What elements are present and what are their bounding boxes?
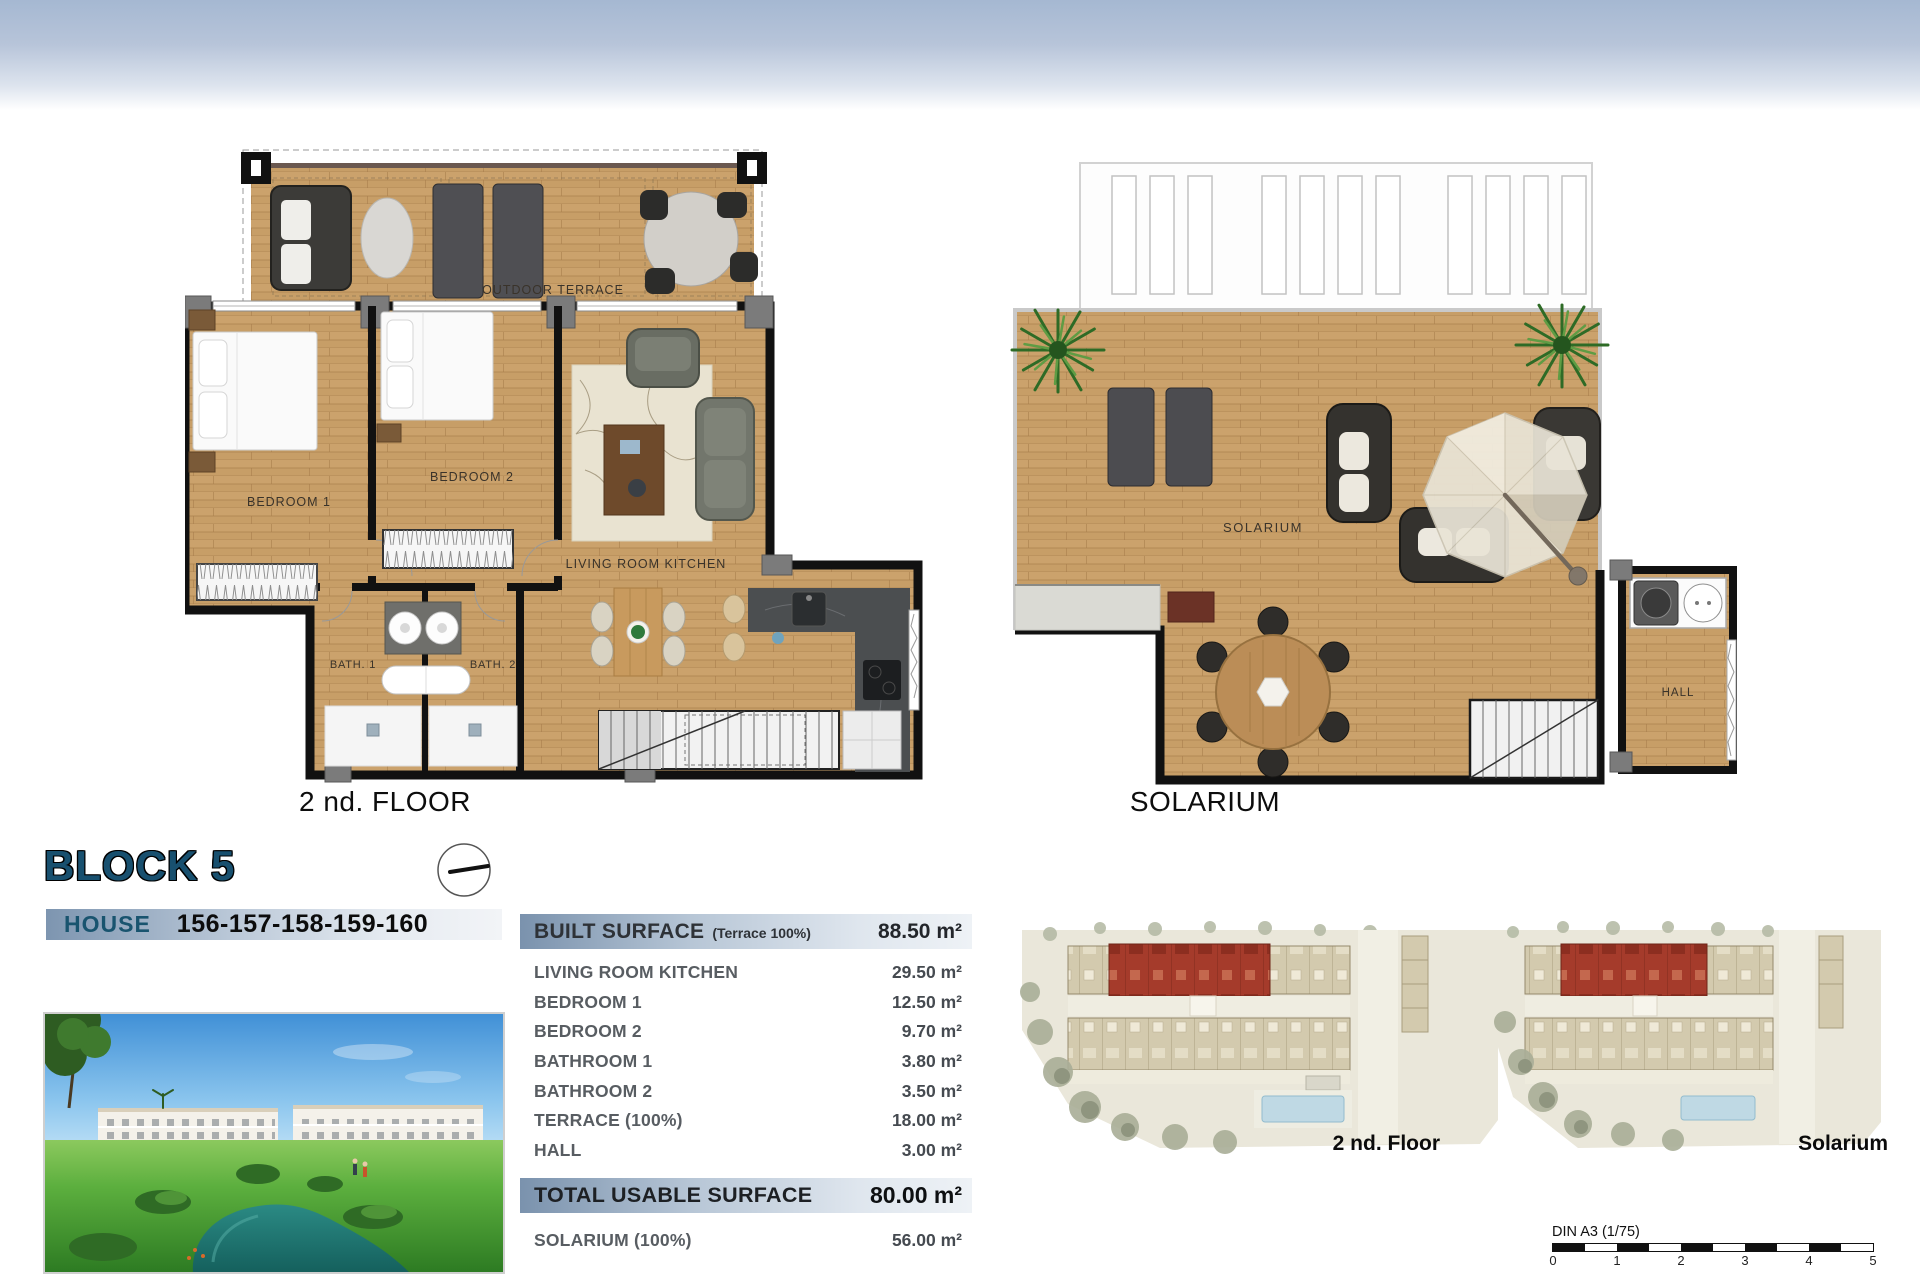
pergola: [1080, 163, 1592, 309]
built-surface-header: BUILT SURFACE (Terrace 100%) 88.50 m²: [520, 914, 972, 949]
surface-rows: LIVING ROOM KITCHEN 29.50 m² BEDROOM 1 1…: [520, 958, 972, 1165]
label-hall: HALL: [1662, 687, 1695, 699]
scale-bar-label: DIN A3 (1/75): [1552, 1224, 1874, 1240]
table-row: BATHROOM 2 3.50 m²: [520, 1076, 972, 1106]
highlighted-units: [1109, 944, 1270, 996]
pool: [1681, 1096, 1755, 1120]
label-living-room-kitchen: LIVING ROOM KITCHEN: [566, 557, 727, 571]
table-row: BEDROOM 1 12.50 m²: [520, 988, 972, 1018]
site-plan-second-floor-label: 2 nd. Floor: [1240, 1132, 1440, 1156]
label-bedroom1: BEDROOM 1: [247, 495, 331, 509]
table-row: TERRACE (100%) 18.00 m²: [520, 1106, 972, 1136]
built-surface-value: 88.50 m²: [878, 920, 962, 944]
outdoor-terrace-area: OUTDOOR TERRACE: [241, 150, 767, 308]
label-bath2: BATH. 2: [470, 659, 516, 671]
sky-gradient-band: [0, 0, 1920, 110]
terrace-ottoman: [361, 198, 413, 278]
scale-bar: DIN A3 (1/75) 0 1 2 3 4 5: [1552, 1224, 1874, 1268]
hall-room: [1610, 560, 1736, 772]
sliding-windows: [213, 301, 737, 311]
floorplan-second-floor: OUTDOOR TERRACE: [185, 140, 925, 790]
surface-table: BUILT SURFACE (Terrace 100%) 88.50 m² LI…: [520, 914, 972, 1256]
built-surface-label: BUILT SURFACE: [534, 920, 704, 944]
house-numbers: 156-157-158-159-160: [177, 910, 428, 939]
table-row: LIVING ROOM KITCHEN 29.50 m²: [520, 958, 972, 988]
scale-bar-segments: [1552, 1243, 1874, 1252]
label-outdoor-terrace: OUTDOOR TERRACE: [482, 283, 624, 297]
property-photo: [43, 1012, 505, 1274]
north-indicator-icon: [436, 842, 492, 898]
floorplan-solarium: HALL SOLARIUM: [1000, 140, 1745, 790]
terrace-sofa: [271, 186, 351, 290]
second-floor-title: 2 nd. FLOOR: [245, 786, 525, 818]
scale-bar-ticks: 0 1 2 3 4 5: [1547, 1253, 1879, 1268]
concrete-walkway: [1015, 585, 1160, 630]
label-bath1: BATH. 1: [330, 659, 376, 671]
site-plan-solarium: [1483, 912, 1888, 1162]
stairs: [599, 711, 901, 769]
site-plan-second-floor: [1010, 912, 1510, 1162]
label-bedroom2: BEDROOM 2: [430, 470, 514, 484]
house-banner: HOUSE 156-157-158-159-160: [46, 909, 502, 940]
sink-icon: [1684, 584, 1722, 622]
solarium-title: SOLARIUM: [1055, 786, 1355, 818]
total-usable-surface-bar: TOTAL USABLE SURFACE 80.00 m²: [520, 1178, 972, 1213]
pool: [1262, 1096, 1344, 1122]
house-label: HOUSE: [46, 911, 151, 938]
block-title: BLOCK 5: [44, 842, 235, 890]
doormat: [1168, 592, 1214, 622]
site-plan-solarium-label: Solarium: [1688, 1132, 1888, 1156]
highlighted-units: [1561, 944, 1707, 996]
label-solarium: SOLARIUM: [1223, 520, 1303, 535]
solarium-stairs: [1470, 700, 1598, 778]
table-row: BEDROOM 2 9.70 m²: [520, 1017, 972, 1047]
table-row: HALL 3.00 m²: [520, 1136, 972, 1166]
table-row: BATHROOM 1 3.80 m²: [520, 1047, 972, 1077]
solarium-surface-row: SOLARIUM (100%) 56.00 m²: [520, 1226, 972, 1256]
built-surface-note: (Terrace 100%): [712, 925, 811, 941]
plan-sheet: OUTDOOR TERRACE: [0, 0, 1920, 1280]
